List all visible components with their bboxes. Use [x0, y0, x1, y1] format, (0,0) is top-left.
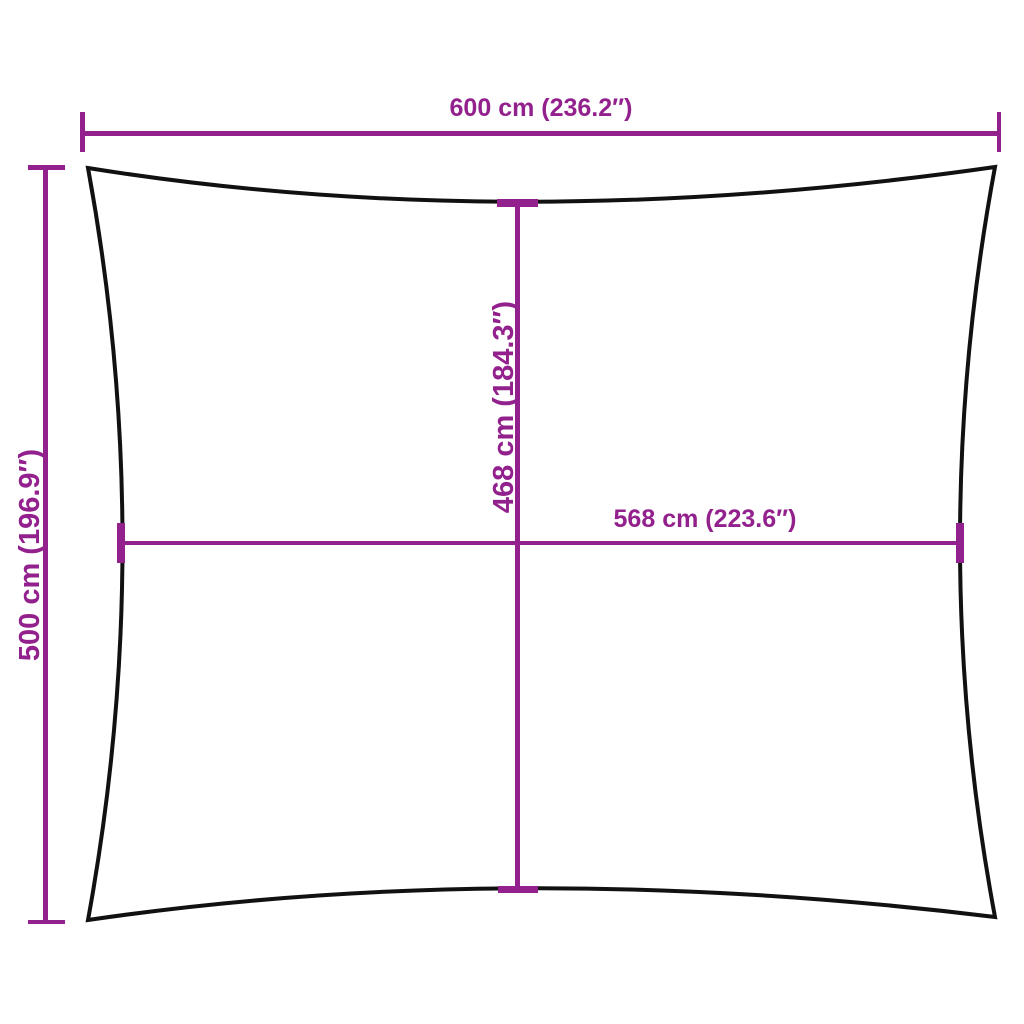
width-dimension-tick-right: [997, 112, 1002, 152]
height-dimension-label: 500 cm (196.9″): [13, 395, 47, 715]
product-dimension-diagram: 600 cm (236.2″) 500 cm (196.9″) 468 cm (…: [0, 0, 1024, 1024]
inner-height-dimension-end-bottom: [498, 886, 538, 893]
inner-width-dimension-end-right: [956, 523, 964, 563]
height-dimension-tick-top: [28, 165, 65, 170]
width-dimension-line: [82, 131, 999, 136]
inner-width-dimension-line: [121, 541, 961, 546]
width-dimension-tick-left: [80, 112, 85, 152]
inner-width-dimension-label: 568 cm (223.6″): [555, 504, 855, 534]
height-dimension-tick-bottom: [28, 920, 65, 925]
inner-height-dimension-end-top: [497, 199, 538, 207]
inner-width-dimension-end-left: [117, 523, 125, 563]
inner-height-dimension-label: 468 cm (184.3″): [487, 257, 521, 557]
width-dimension-label: 600 cm (236.2″): [341, 93, 741, 123]
